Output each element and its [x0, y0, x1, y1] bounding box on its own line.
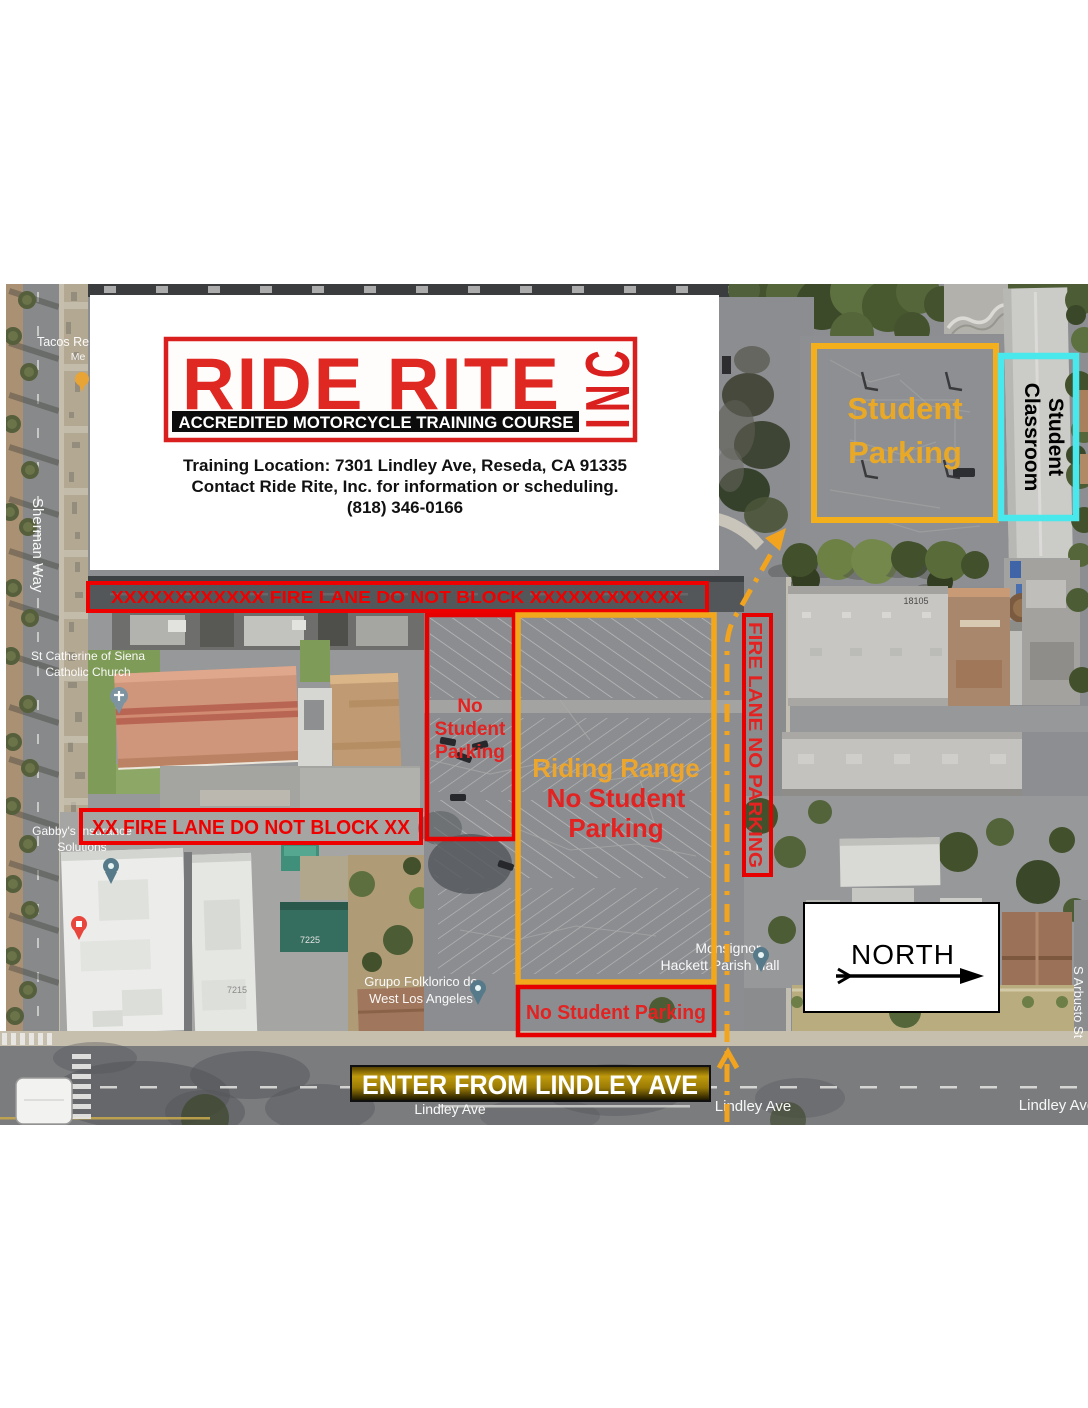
- svg-text:(818) 346-0166: (818) 346-0166: [347, 498, 463, 517]
- svg-text:Tacos Re: Tacos Re: [37, 335, 89, 349]
- svg-text:No: No: [457, 696, 482, 717]
- svg-text:Lindley Ave: Lindley Ave: [414, 1101, 486, 1117]
- svg-text:Parking: Parking: [848, 435, 962, 470]
- svg-text:Classroom: Classroom: [1020, 383, 1043, 492]
- svg-text:Contact Ride Rite, Inc. for in: Contact Ride Rite, Inc. for information …: [192, 477, 619, 496]
- svg-text:NORTH: NORTH: [851, 939, 955, 970]
- svg-text:7225: 7225: [300, 935, 320, 945]
- svg-text:Parking: Parking: [435, 742, 505, 763]
- svg-text:No Student Parking: No Student Parking: [526, 1002, 706, 1024]
- svg-text:Student: Student: [1044, 398, 1067, 476]
- svg-text:18105: 18105: [903, 596, 928, 606]
- svg-text:Riding Range: Riding Range: [532, 753, 700, 783]
- svg-text:St Catherine of Siena: St Catherine of Siena: [31, 649, 145, 663]
- svg-text:Lindley Ave: Lindley Ave: [1019, 1097, 1088, 1114]
- svg-text:ACCREDITED MOTORCYCLE TRAINING: ACCREDITED MOTORCYCLE TRAINING COURSE: [179, 414, 574, 432]
- svg-text:XXXXXXXXXXXX FIRE LANE DO NOT: XXXXXXXXXXXX FIRE LANE DO NOT BLOCK XXXX…: [111, 587, 683, 607]
- svg-text:FIRE LANE NO PARKING: FIRE LANE NO PARKING: [745, 622, 766, 868]
- svg-text:Training Location: 7301 Lindle: Training Location: 7301 Lindley Ave, Res…: [183, 456, 627, 475]
- svg-text:S Arbusto St: S Arbusto St: [1071, 966, 1086, 1039]
- svg-text:No Student: No Student: [547, 783, 686, 813]
- svg-text:XX FIRE LANE DO NOT BLOCK XX: XX FIRE LANE DO NOT BLOCK XX: [92, 816, 410, 839]
- svg-text:Me: Me: [71, 351, 86, 363]
- svg-text:West Los Angeles: West Los Angeles: [369, 991, 473, 1006]
- svg-text:Student: Student: [435, 719, 506, 740]
- svg-text:Grupo Folklorico de: Grupo Folklorico de: [364, 974, 477, 989]
- svg-text:ENTER FROM LINDLEY AVE: ENTER FROM LINDLEY AVE: [362, 1070, 698, 1100]
- svg-text:Parking: Parking: [568, 813, 663, 843]
- svg-text:7215: 7215: [227, 985, 247, 995]
- svg-text:Catholic Church: Catholic Church: [45, 665, 130, 679]
- svg-text:Student: Student: [847, 391, 962, 426]
- svg-text:INC: INC: [573, 344, 643, 429]
- svg-text:Sherman Way: Sherman Way: [29, 498, 46, 593]
